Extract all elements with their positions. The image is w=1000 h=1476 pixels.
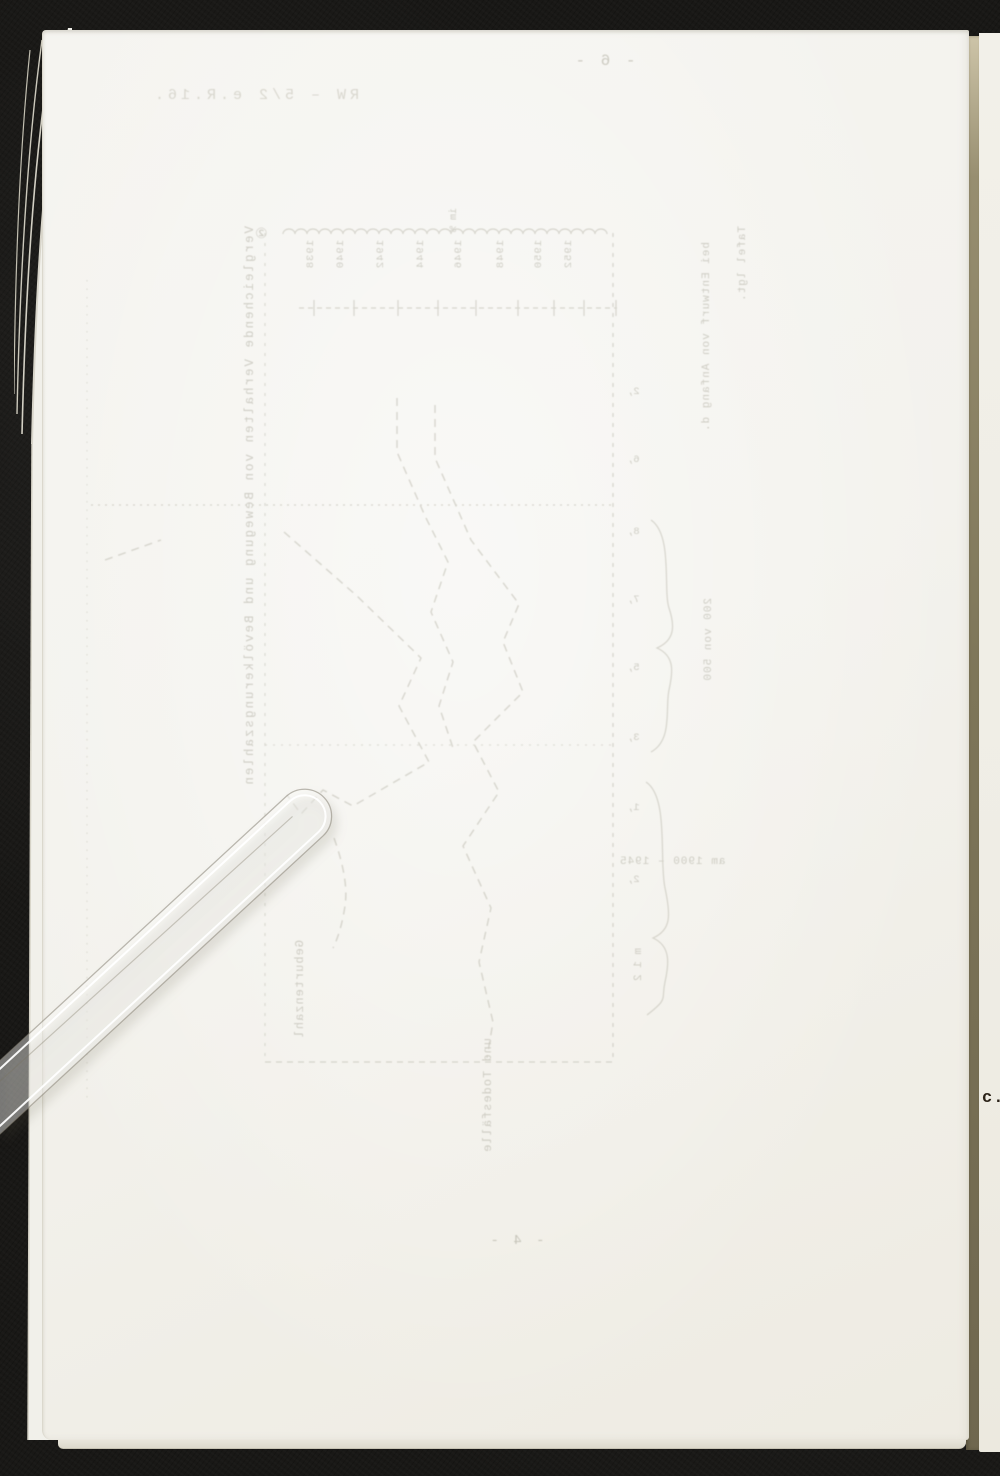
bone-folder-body [0,778,343,1197]
bone-folder-tool [0,0,1000,1476]
